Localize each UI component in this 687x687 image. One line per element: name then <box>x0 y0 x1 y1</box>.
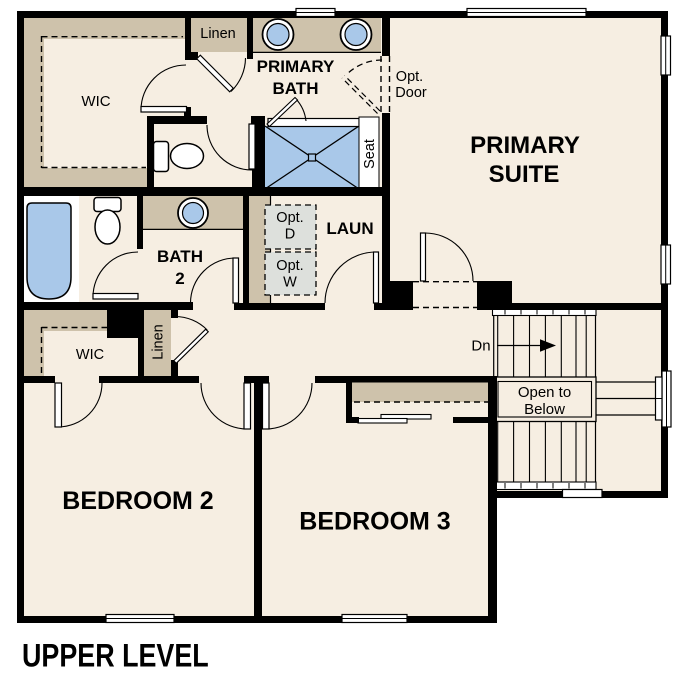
svg-text:Door: Door <box>395 85 427 101</box>
svg-text:Opt.: Opt. <box>276 258 303 274</box>
svg-text:Opt.: Opt. <box>276 210 303 226</box>
svg-text:UPPER LEVEL: UPPER LEVEL <box>22 638 209 674</box>
svg-text:BEDROOM 3: BEDROOM 3 <box>299 508 450 536</box>
svg-text:W: W <box>283 275 297 291</box>
svg-text:Dn: Dn <box>471 338 490 355</box>
svg-text:2: 2 <box>175 269 184 288</box>
svg-text:Open to: Open to <box>518 384 571 401</box>
svg-text:Below: Below <box>524 401 565 418</box>
svg-text:PRIMARY: PRIMARY <box>470 132 580 159</box>
svg-text:BATH: BATH <box>273 79 319 98</box>
svg-text:PRIMARY: PRIMARY <box>257 57 335 76</box>
svg-text:BATH: BATH <box>157 247 203 266</box>
svg-text:SUITE: SUITE <box>489 161 560 188</box>
svg-text:LAUN: LAUN <box>326 219 373 238</box>
svg-text:WIC: WIC <box>76 347 104 363</box>
svg-text:Linen: Linen <box>150 324 166 359</box>
svg-text:Linen: Linen <box>200 26 235 42</box>
svg-text:D: D <box>285 227 295 243</box>
svg-text:Seat: Seat <box>362 139 378 169</box>
svg-text:WIC: WIC <box>81 93 110 110</box>
svg-text:Opt.: Opt. <box>396 69 423 85</box>
svg-text:BEDROOM 2: BEDROOM 2 <box>62 487 213 515</box>
